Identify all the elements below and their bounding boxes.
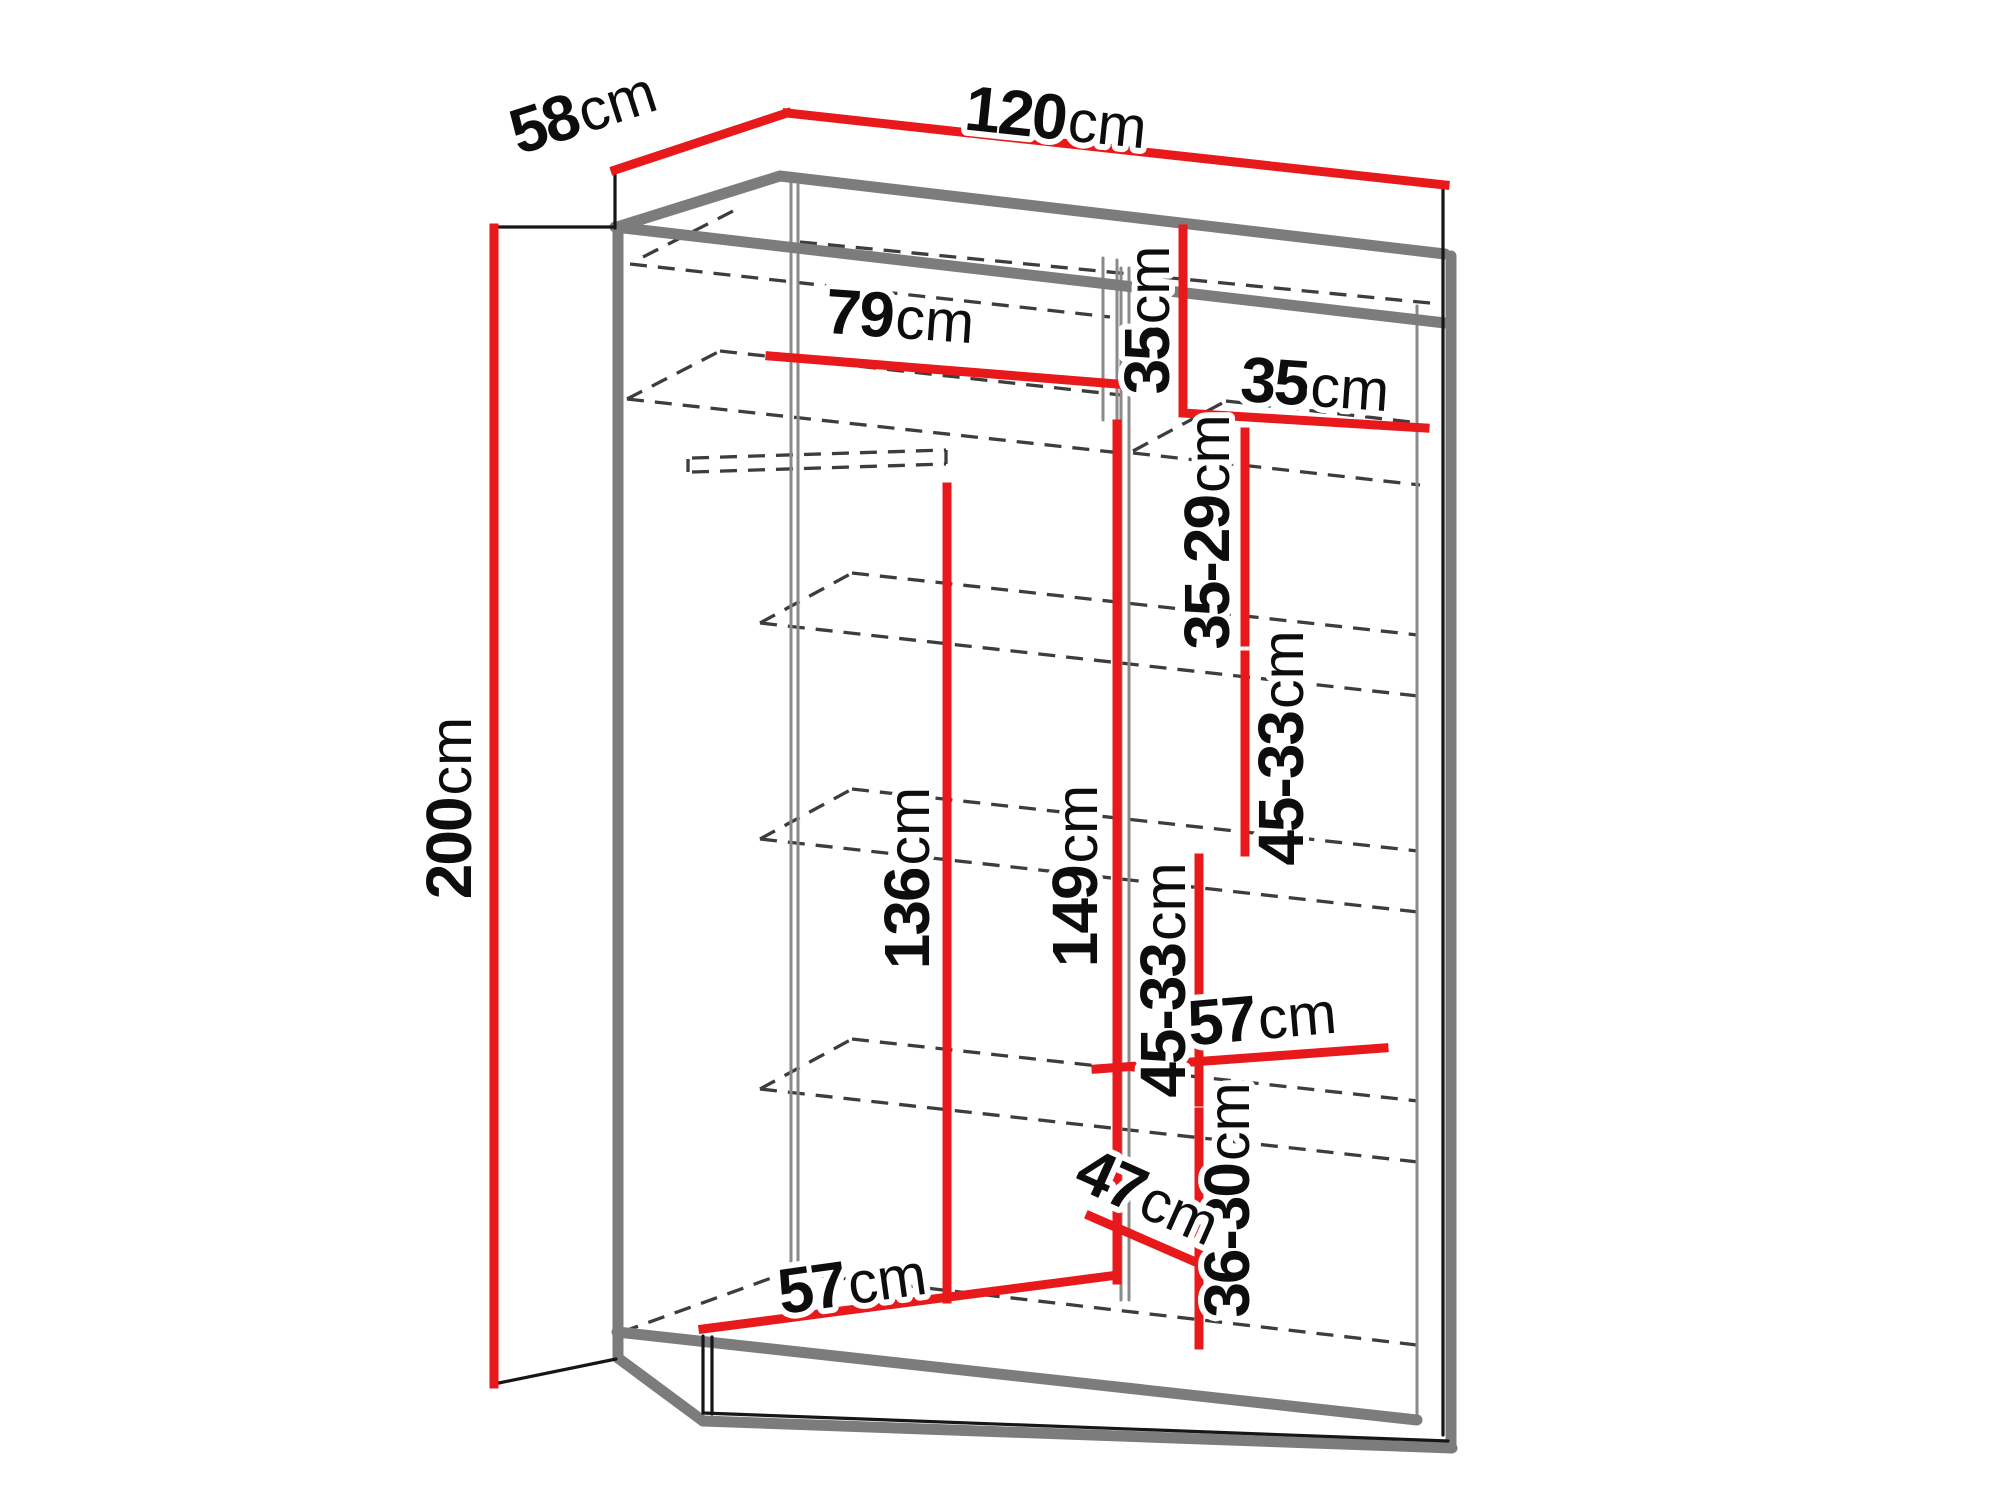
- left-wall-top-depth-edge: [617, 176, 780, 227]
- label-hanging-136: 136cm: [871, 787, 943, 969]
- label-gap-45-33-upper: 45-33cm: [1245, 630, 1317, 865]
- top-shelf-left-edge: [627, 351, 720, 399]
- left-foot-shadow-edge: [618, 1358, 703, 1421]
- shelf2-front-edge: [760, 623, 1418, 696]
- dim-line-left-width-79: [770, 356, 1117, 384]
- shelf3-left-edge: [760, 789, 852, 839]
- label-left-width-79: 79cm: [823, 275, 977, 357]
- label-gap-35-29: 35-29cm: [1171, 414, 1243, 649]
- label-gap-45-33-lower: 45-33cm: [1127, 862, 1199, 1097]
- wardrobe-dimension-diagram: 58cm 120cm 200cm 79cm 35cm 35cm 35-29cm …: [0, 0, 2000, 1500]
- label-cubby-height-35: 35cm: [1111, 246, 1183, 395]
- hanger-rod-top-edge: [692, 450, 946, 458]
- ceiling-back-edge: [780, 176, 1445, 254]
- label-interior-149: 149cm: [1039, 785, 1111, 967]
- hanger-rod-bottom-edge: [692, 464, 946, 472]
- shelf2-left-edge: [760, 573, 852, 623]
- label-shelf-depth-57: 57cm: [1185, 975, 1340, 1060]
- height-witness-line-bottom: [494, 1359, 616, 1384]
- bottom-shadow-edge: [703, 1421, 1452, 1448]
- diagram-canvas: 58cm 120cm 200cm 79cm 35cm 35cm 35-29cm …: [0, 0, 2000, 1500]
- label-width-120: 120cm: [962, 72, 1151, 163]
- label-cubby-width-35: 35cm: [1238, 343, 1392, 425]
- floor-front-edge: [617, 1332, 1417, 1420]
- top-shelf-front-edge: [627, 399, 1121, 453]
- label-depth-58: 58cm: [501, 54, 665, 168]
- shelf4-left-edge: [760, 1039, 852, 1089]
- shelf2-back-edge: [852, 573, 1418, 635]
- label-height-200: 200cm: [413, 717, 485, 899]
